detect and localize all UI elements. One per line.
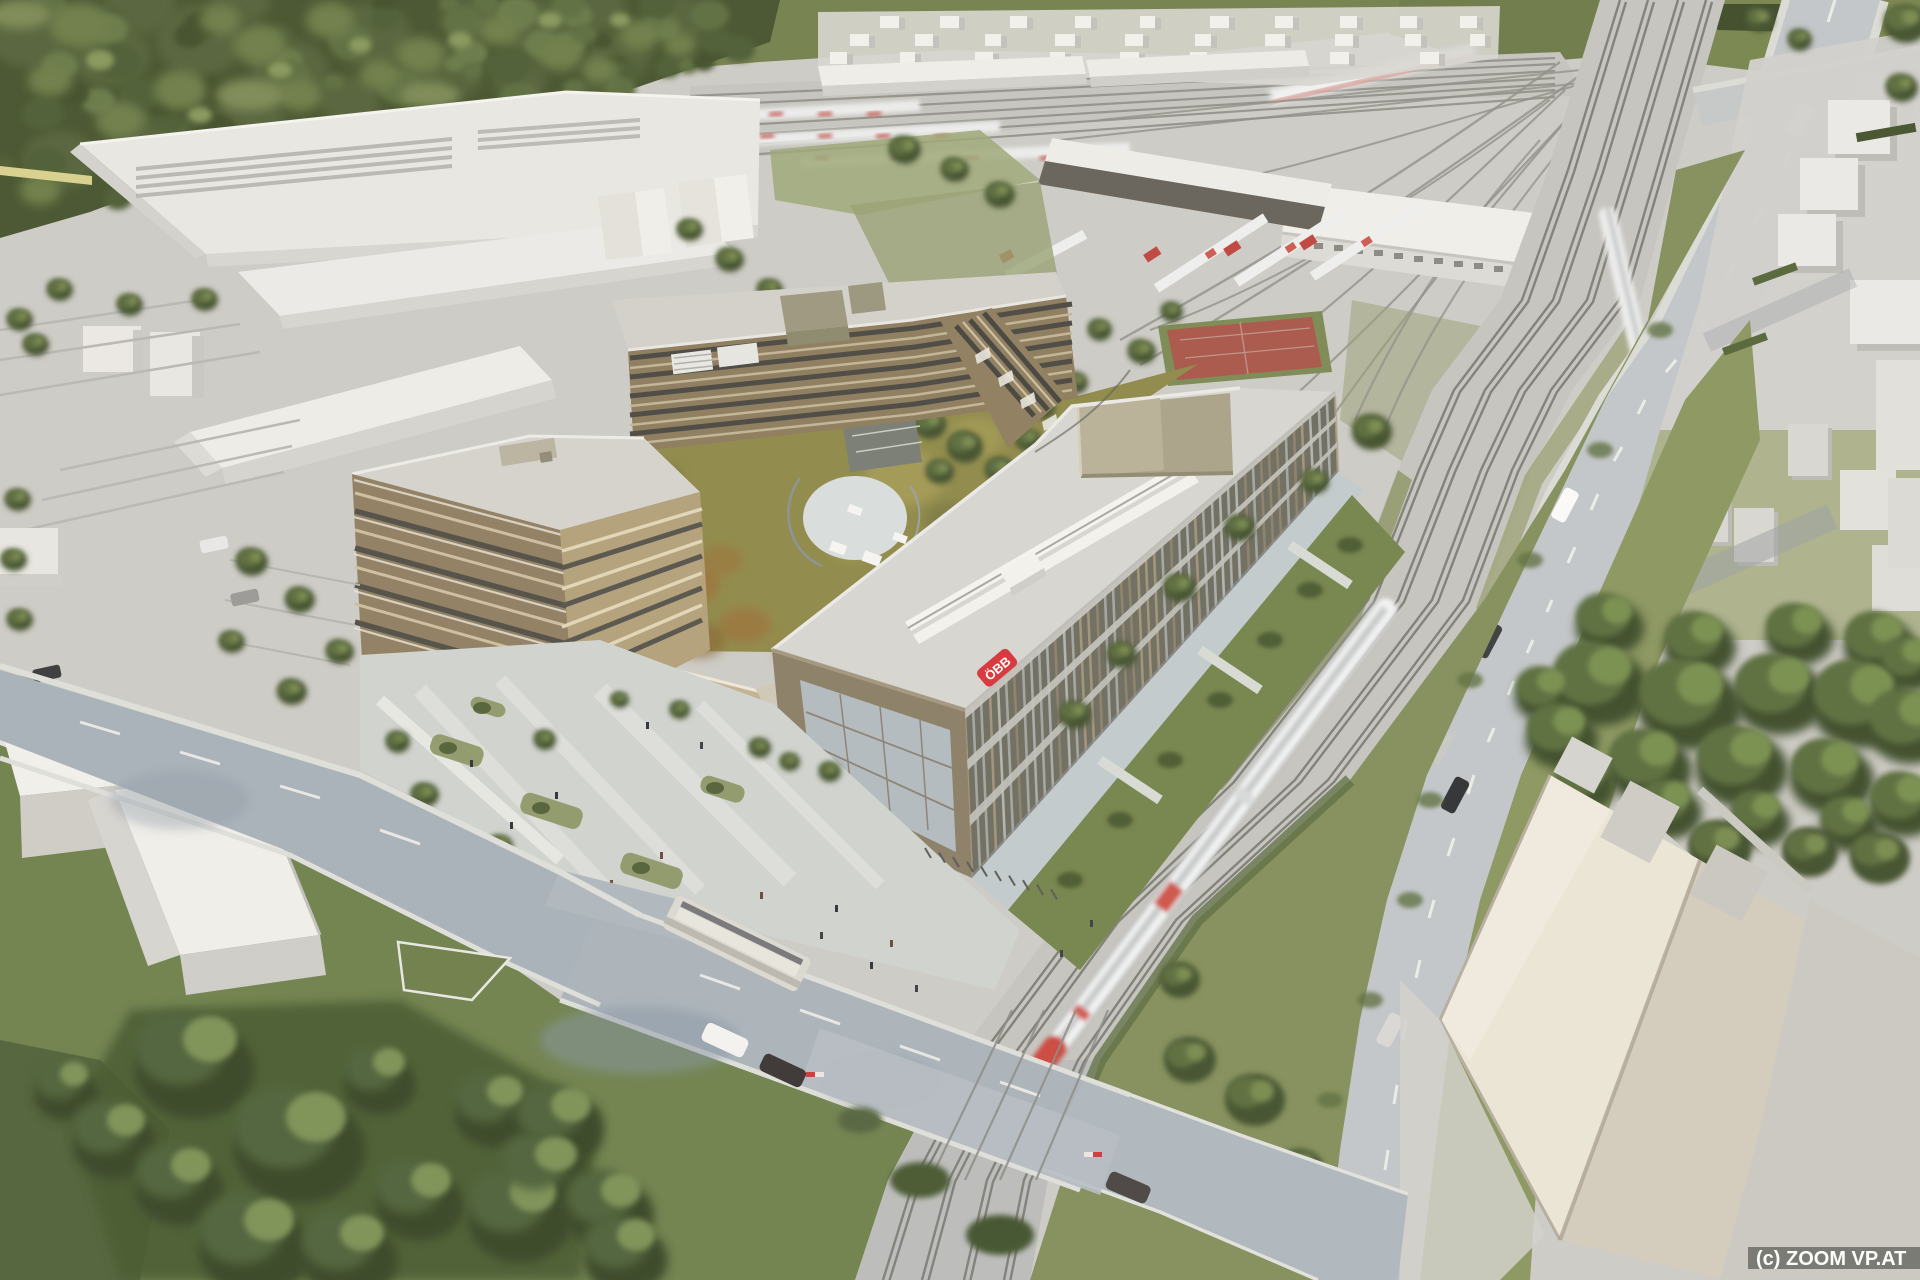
svg-text:(c) ZOOM VP.AT: (c) ZOOM VP.AT (1756, 1248, 1906, 1270)
